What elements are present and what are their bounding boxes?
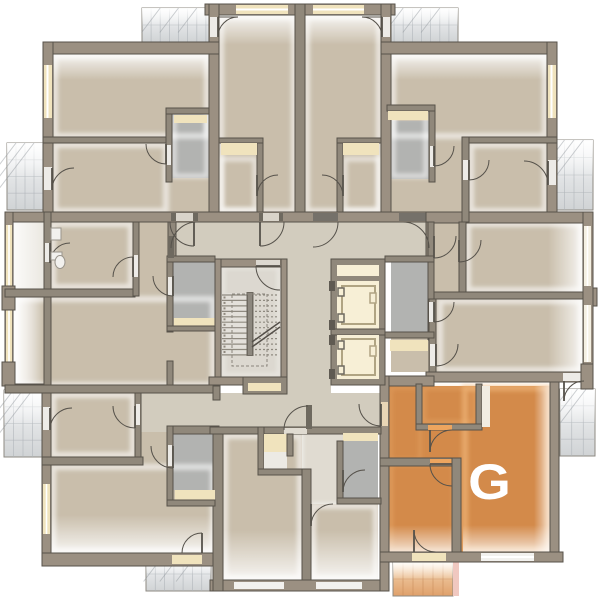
svg-text:G: G <box>468 454 511 510</box>
